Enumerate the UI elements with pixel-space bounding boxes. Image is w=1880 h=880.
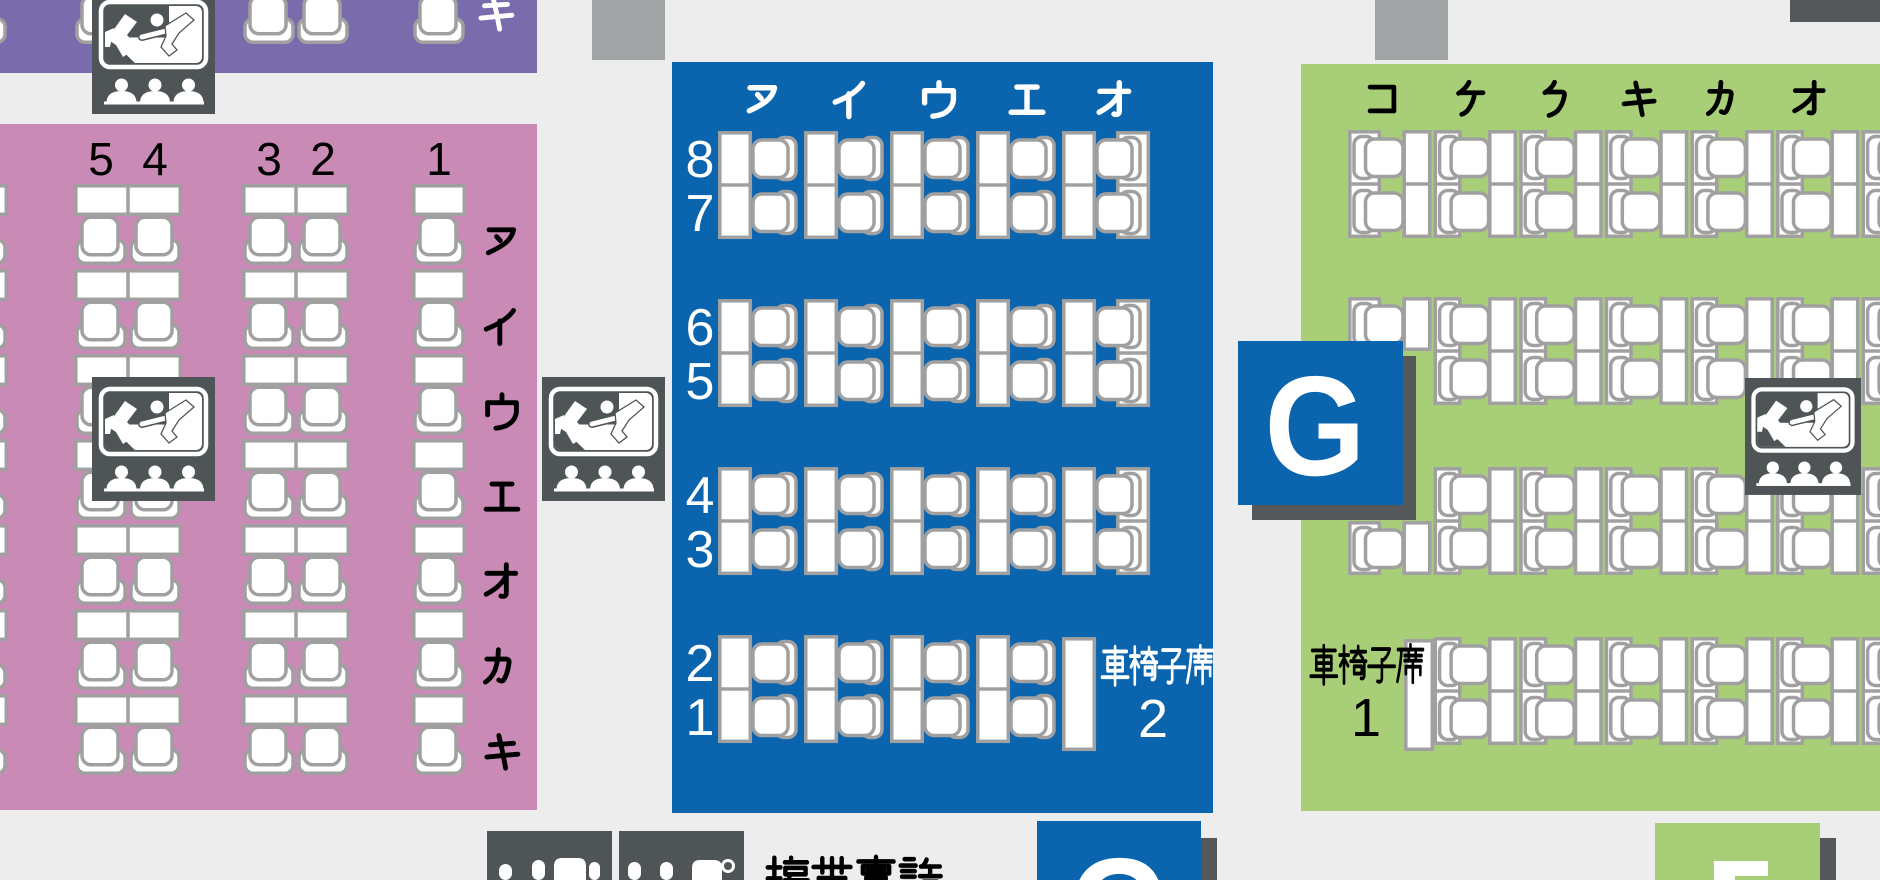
svg-text:3: 3 xyxy=(686,521,715,579)
svg-text:5: 5 xyxy=(686,353,715,411)
svg-text:2: 2 xyxy=(310,133,336,185)
svg-text:5: 5 xyxy=(88,133,114,185)
svg-text:3: 3 xyxy=(256,133,282,185)
svg-text:4: 4 xyxy=(142,133,168,185)
svg-text:8: 8 xyxy=(686,131,715,189)
svg-text:G: G xyxy=(1069,829,1170,880)
svg-text:6: 6 xyxy=(686,299,715,357)
svg-text:4: 4 xyxy=(686,467,715,525)
svg-text:1: 1 xyxy=(426,133,452,185)
svg-text:2: 2 xyxy=(686,635,715,693)
svg-text:1: 1 xyxy=(1351,688,1381,748)
svg-text:1: 1 xyxy=(686,689,715,747)
svg-text:2: 2 xyxy=(1138,689,1168,749)
svg-text:7: 7 xyxy=(686,185,715,243)
svg-text:G: G xyxy=(1265,347,1366,506)
